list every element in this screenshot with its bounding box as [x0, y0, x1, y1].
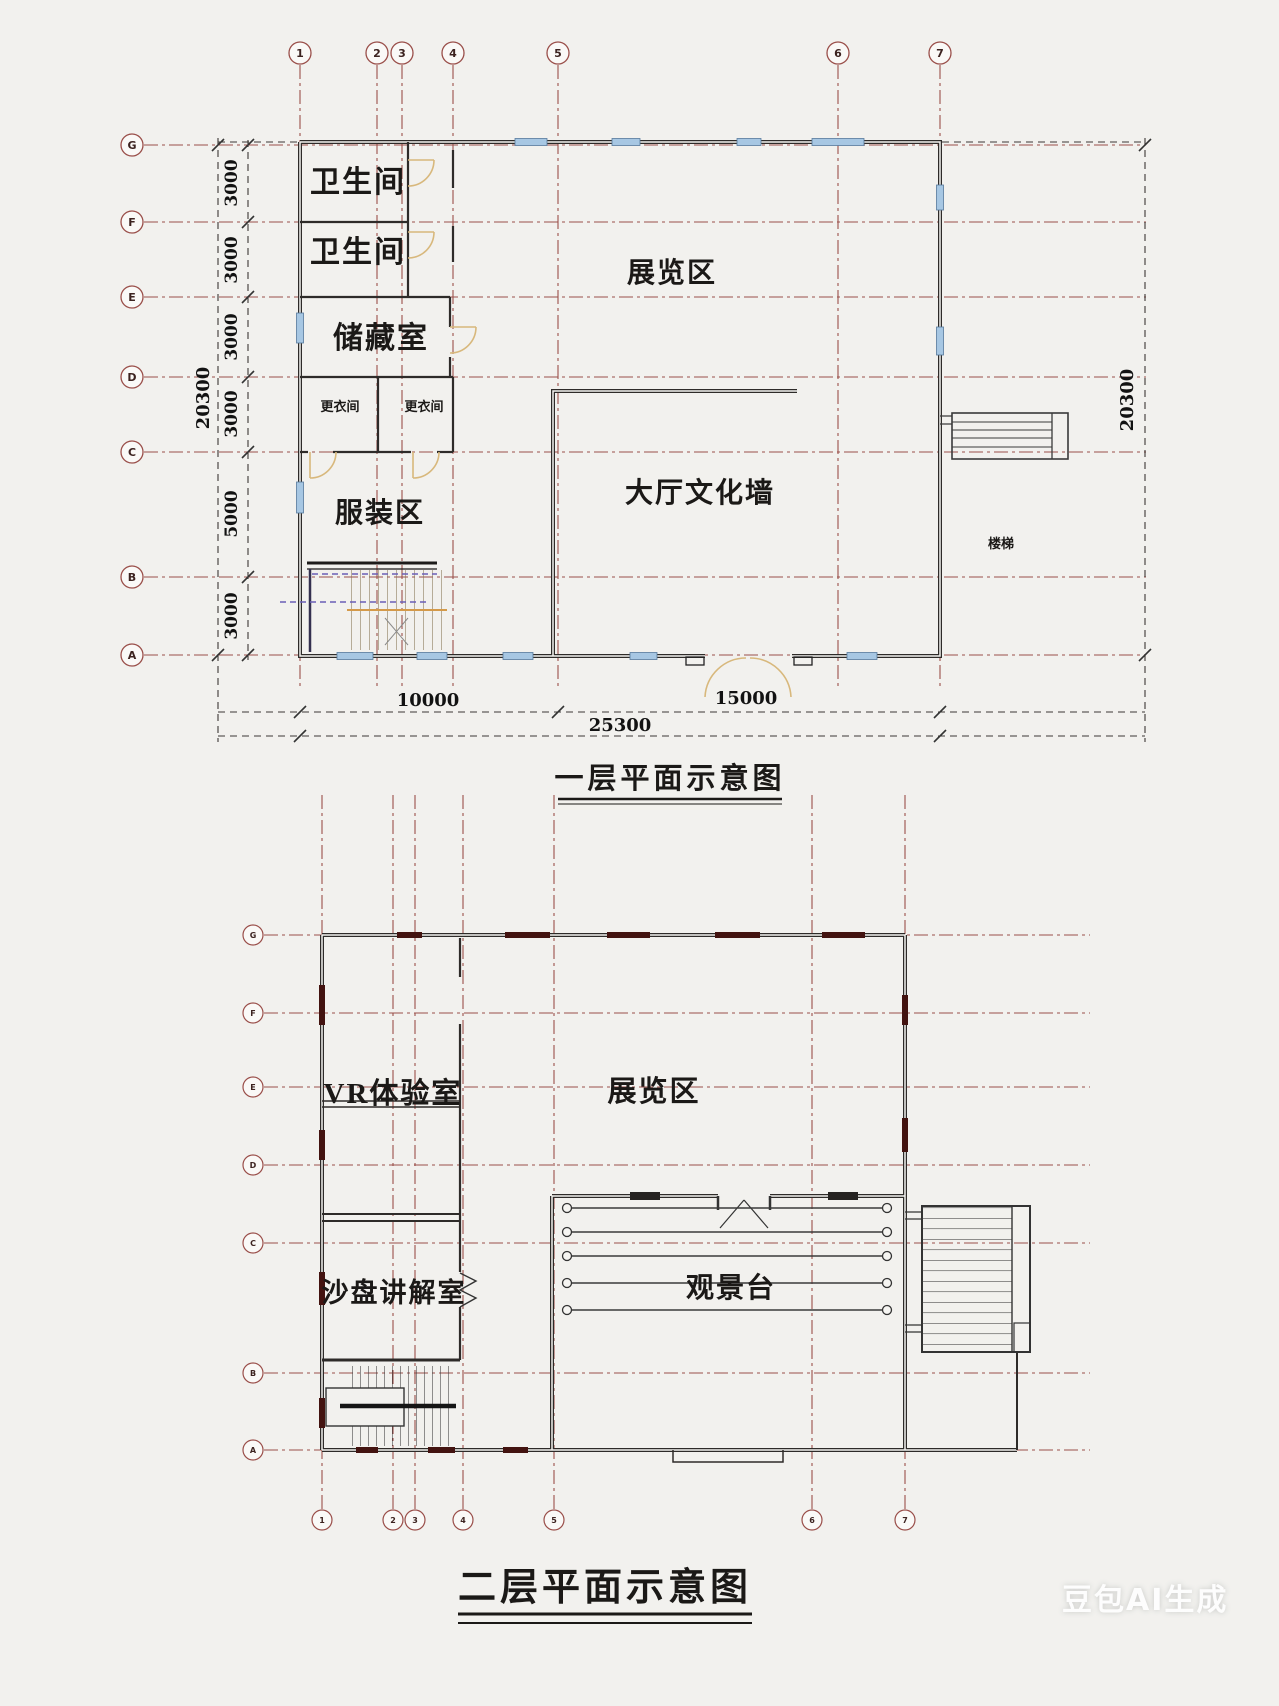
plan1: 1 2 3 4 5 6 7 G F E D C B A 3000 3000 30… — [121, 42, 1151, 804]
plan2-room-labels: VR体验室 展览区 沙盘讲解室 观景台 — [322, 1075, 777, 1308]
dim-3000-1: 3000 — [222, 159, 242, 206]
plan2-stair-left — [326, 1366, 456, 1446]
plan2: G F E D C B A 1 2 3 4 5 6 7 VR体验室 展览区 沙盘… — [243, 795, 1090, 1623]
plan1-title-text: 一层平面示意图 — [554, 761, 785, 795]
grid-bubble-F: F — [128, 216, 136, 229]
dim-10000: 10000 — [397, 690, 460, 711]
grid-bubble-B: B — [128, 571, 136, 584]
room-label-exhibition-1: 展览区 — [627, 257, 717, 289]
grid2-bubble-6: 6 — [809, 1516, 815, 1525]
room-label-hall: 大厅文化墙 — [625, 476, 775, 509]
grid-bubble-A: A — [128, 649, 137, 662]
room-label-toilet-1: 卫生间 — [310, 166, 406, 199]
room-label-changing-2: 更衣间 — [404, 399, 443, 414]
plan1-stair-left — [280, 563, 447, 652]
plan2-stair-right — [905, 1206, 1030, 1352]
grid2-bubble-2: 2 — [390, 1516, 396, 1525]
grid2-bubble-E: E — [250, 1083, 255, 1092]
plan1-grid-bubbles: 1 2 3 4 5 6 7 G F E D C B A — [121, 42, 951, 666]
plan1-dimension-lines — [218, 138, 1145, 742]
room-label-exhibition-2: 展览区 — [607, 1075, 700, 1108]
plans-drawing: 1 2 3 4 5 6 7 G F E D C B A 3000 3000 30… — [0, 0, 1279, 1706]
platform-sill-right — [828, 1192, 858, 1200]
grid-bubble-5: 5 — [554, 47, 562, 60]
plan1-dimension-ticks — [212, 139, 1151, 742]
dim-5000: 5000 — [222, 490, 242, 537]
plan2-grid-bubbles: G F E D C B A 1 2 3 4 5 6 7 — [243, 925, 915, 1530]
platform-sill-left — [630, 1192, 660, 1200]
room-label-vr: VR体验室 — [324, 1076, 463, 1110]
grid2-bubble-B: B — [250, 1369, 256, 1378]
grid2-bubble-4: 4 — [460, 1516, 466, 1525]
room-label-changing-1: 更衣间 — [320, 399, 359, 414]
grid-bubble-6: 6 — [834, 47, 842, 60]
room-label-storage: 储藏室 — [333, 321, 429, 355]
grid2-bubble-G: G — [250, 931, 257, 940]
grid-bubble-7: 7 — [936, 47, 944, 60]
room-label-toilet-2: 卫生间 — [310, 236, 406, 269]
grid2-bubble-5: 5 — [551, 1516, 557, 1525]
plan1-entrance-door-stops — [686, 657, 812, 665]
grid-bubble-2: 2 — [373, 47, 381, 60]
plan1-room-labels: 卫生间 卫生间 储藏室 更衣间 更衣间 服装区 展览区 大厅文化墙 楼梯 — [310, 166, 1014, 551]
dim-15000: 15000 — [715, 688, 778, 709]
grid2-bubble-7: 7 — [902, 1516, 908, 1525]
grid-bubble-E: E — [128, 291, 136, 304]
plan2-title: 二层平面示意图 — [458, 1567, 752, 1623]
room-label-viewing: 观景台 — [686, 1271, 776, 1304]
room-label-clothing: 服装区 — [335, 497, 425, 529]
room-label-sandtable: 沙盘讲解室 — [322, 1277, 467, 1308]
dim-3000-2: 3000 — [222, 236, 242, 283]
dim-20300-right: 20300 — [1117, 369, 1138, 432]
grid2-bubble-A: A — [250, 1446, 257, 1455]
plan1-gridlines — [144, 65, 1146, 688]
dim-25300: 25300 — [589, 715, 652, 736]
watermark: 豆包AI生成 — [1062, 1575, 1228, 1619]
grid2-bubble-D: D — [250, 1161, 257, 1170]
grid-bubble-3: 3 — [398, 47, 406, 60]
room-label-stairs: 楼梯 — [988, 536, 1014, 551]
dim-3000-3: 3000 — [222, 313, 242, 360]
grid2-bubble-C: C — [250, 1239, 256, 1248]
platform-door — [718, 1196, 770, 1228]
grid-bubble-G: G — [127, 139, 136, 152]
grid-bubble-C: C — [128, 446, 136, 459]
dim-20300-left: 20300 — [193, 367, 214, 430]
grid2-bubble-3: 3 — [412, 1516, 418, 1525]
grid2-bubble-1: 1 — [319, 1516, 325, 1525]
plan1-title: 一层平面示意图 — [554, 761, 785, 804]
grid-bubble-D: D — [127, 371, 136, 384]
dim-3000-4: 3000 — [222, 390, 242, 437]
floor-plan-sheet: 1 2 3 4 5 6 7 G F E D C B A 3000 3000 30… — [0, 0, 1279, 1706]
grid2-bubble-F: F — [250, 1009, 255, 1018]
plan2-title-text: 二层平面示意图 — [458, 1567, 752, 1609]
grid-bubble-4: 4 — [449, 47, 457, 60]
dim-3000-5: 3000 — [222, 592, 242, 639]
grid-bubble-1: 1 — [296, 47, 304, 60]
